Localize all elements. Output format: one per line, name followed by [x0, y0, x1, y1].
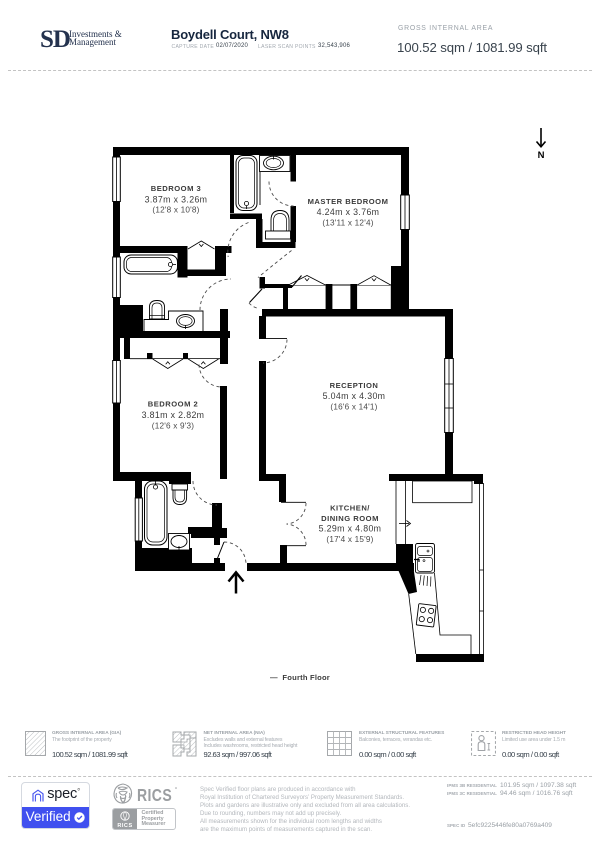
svg-text:RECEPTION: RECEPTION	[330, 381, 379, 390]
svg-text:(12'6 x 9'3): (12'6 x 9'3)	[152, 421, 194, 430]
svg-text:BEDROOM 2: BEDROOM 2	[148, 400, 199, 409]
svg-text:RICS: RICS	[137, 785, 172, 805]
svg-text:(12'8 x 10'8): (12'8 x 10'8)	[152, 206, 199, 215]
svg-text:4.24m x 3.76m: 4.24m x 3.76m	[317, 207, 380, 217]
svg-text:BEDROOM 3: BEDROOM 3	[151, 184, 202, 193]
svg-text:(13'11 x 12'4): (13'11 x 12'4)	[322, 218, 373, 227]
svg-text:N: N	[538, 150, 545, 161]
svg-text:5.04m x 4.30m: 5.04m x 4.30m	[323, 391, 386, 401]
svg-text:(17'4 x 15'9): (17'4 x 15'9)	[326, 535, 373, 544]
svg-text:(16'6 x 14'1): (16'6 x 14'1)	[330, 403, 377, 412]
svg-text:5.29m x 4.80m: 5.29m x 4.80m	[319, 524, 382, 534]
svg-text:KITCHEN/: KITCHEN/	[330, 504, 370, 513]
svg-text:MASTER BEDROOM: MASTER BEDROOM	[308, 197, 389, 206]
svg-text:RICS: RICS	[117, 823, 132, 829]
svg-text:3.81m x 2.82m: 3.81m x 2.82m	[142, 410, 205, 420]
svg-text:3.87m x 3.26m: 3.87m x 3.26m	[145, 194, 208, 204]
svg-text:DINING ROOM: DINING ROOM	[321, 514, 379, 523]
